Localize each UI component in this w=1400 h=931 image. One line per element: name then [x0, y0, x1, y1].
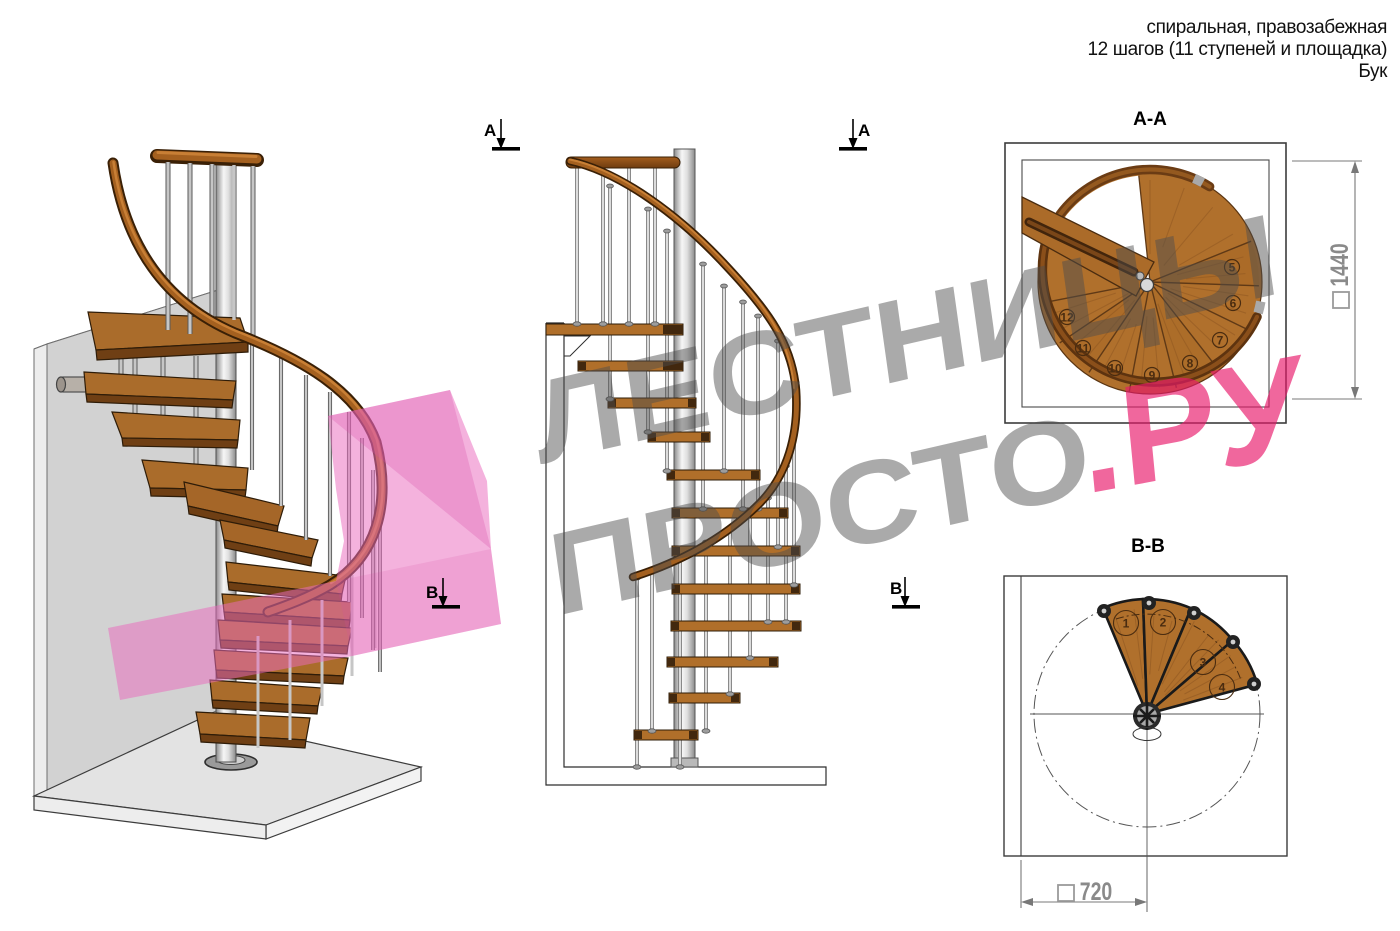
- svg-text:В-В: В-В: [1131, 536, 1165, 557]
- svg-text:A: A: [484, 121, 496, 140]
- svg-text:3: 3: [1200, 656, 1207, 670]
- svg-text:А-А: А-А: [1133, 109, 1167, 130]
- svg-text:1440: 1440: [1326, 243, 1354, 286]
- svg-text:720: 720: [1080, 878, 1113, 906]
- svg-text:A: A: [858, 121, 870, 140]
- svg-text:B: B: [890, 579, 902, 598]
- svg-text:2: 2: [1160, 616, 1167, 630]
- svg-text:4: 4: [1219, 681, 1226, 695]
- svg-text:1: 1: [1123, 617, 1130, 631]
- svg-text:B: B: [426, 583, 438, 602]
